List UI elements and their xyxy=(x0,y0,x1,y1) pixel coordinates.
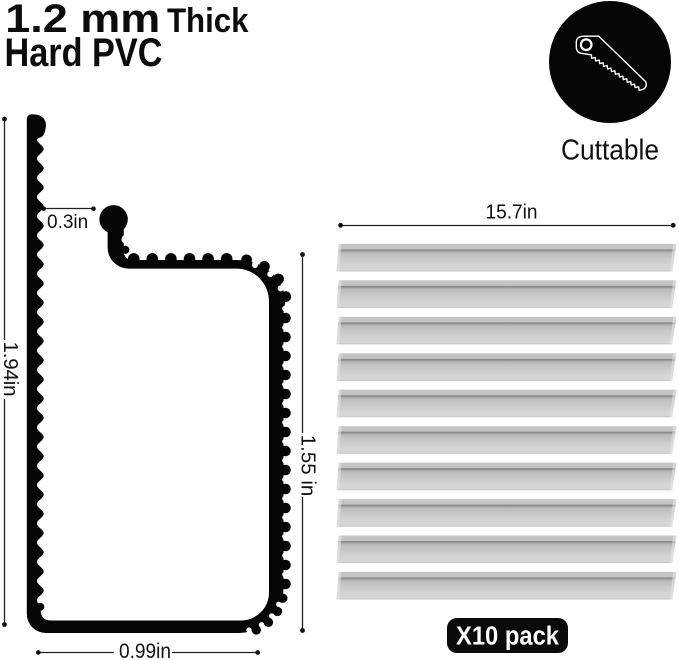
svg-text:0.3in: 0.3in xyxy=(47,212,88,233)
svg-text:1.55 in: 1.55 in xyxy=(297,435,320,497)
svg-text:X10 pack: X10 pack xyxy=(456,623,560,651)
svg-text:0.99in: 0.99in xyxy=(119,640,171,660)
svg-text:Hard PVC: Hard PVC xyxy=(5,31,163,75)
svg-text:1.94in: 1.94in xyxy=(0,342,22,397)
svg-text:Thick: Thick xyxy=(167,2,249,40)
svg-text:Cuttable: Cuttable xyxy=(561,135,659,167)
svg-text:15.7in: 15.7in xyxy=(486,200,538,223)
